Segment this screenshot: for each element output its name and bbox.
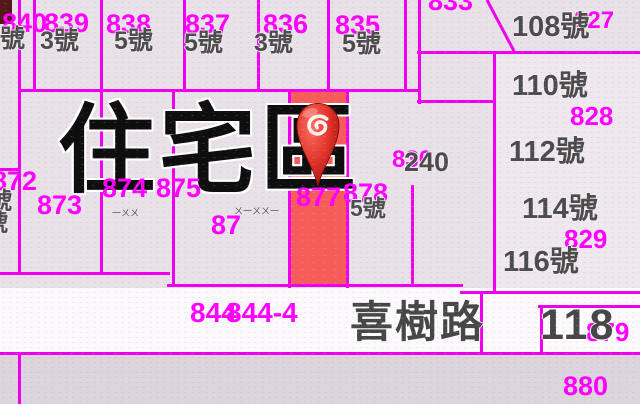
road-number-label: 118 xyxy=(540,304,615,347)
house-number-label: 114號 xyxy=(522,195,598,224)
lot-number-label: 880 xyxy=(563,373,608,400)
house-number-label: 5號 xyxy=(350,197,386,220)
house-number-label: 5號 xyxy=(114,29,153,54)
parcel-line xyxy=(493,51,496,292)
south-band xyxy=(0,353,640,404)
parcel-line xyxy=(460,291,640,294)
lot-number-label: 833 xyxy=(428,0,473,15)
parcel-line xyxy=(404,0,407,90)
parcel-line xyxy=(417,51,640,54)
house-number-label: 116號 xyxy=(503,248,579,277)
parcel-line xyxy=(167,284,463,287)
house-number-label: 3號 xyxy=(40,29,79,54)
parcel-line xyxy=(18,89,418,92)
small-annotation-text: 一ㄨㄨ xyxy=(112,209,139,218)
lot-number-label: 87 xyxy=(211,212,241,239)
parcel-line xyxy=(0,272,170,275)
parcel-line xyxy=(0,352,640,355)
house-number-label: 5號 xyxy=(342,32,381,57)
house-number-label: 108號 xyxy=(512,13,589,42)
lot-number-label: 874 xyxy=(102,175,147,202)
house-number-label: 5號 xyxy=(184,31,223,56)
lot-number-label: 873 xyxy=(37,192,82,219)
lot-number-label: 828 xyxy=(570,103,613,129)
parcel-line xyxy=(327,0,330,90)
map-canvas[interactable]: 住宅區 840839838837836835833827828829830872… xyxy=(0,0,640,404)
location-pin-icon[interactable] xyxy=(292,98,344,197)
house-number-label: 240 xyxy=(404,149,449,176)
house-number-label: 號 xyxy=(0,27,25,52)
house-number-label: 號 xyxy=(0,212,8,236)
lot-number-label: 875 xyxy=(156,175,201,202)
parcel-line xyxy=(18,352,21,404)
road-name-label: 喜樹路 xyxy=(350,302,485,345)
small-annotation-text: ㄨ一ㄨㄨ一 xyxy=(234,207,279,216)
parcel-line xyxy=(411,185,414,286)
parcel-line xyxy=(417,100,496,103)
house-number-label: 110號 xyxy=(512,72,588,101)
lot-number-label: 844-4 xyxy=(226,299,298,327)
house-number-label: 112號 xyxy=(509,138,585,167)
house-number-label: 3號 xyxy=(254,31,293,56)
